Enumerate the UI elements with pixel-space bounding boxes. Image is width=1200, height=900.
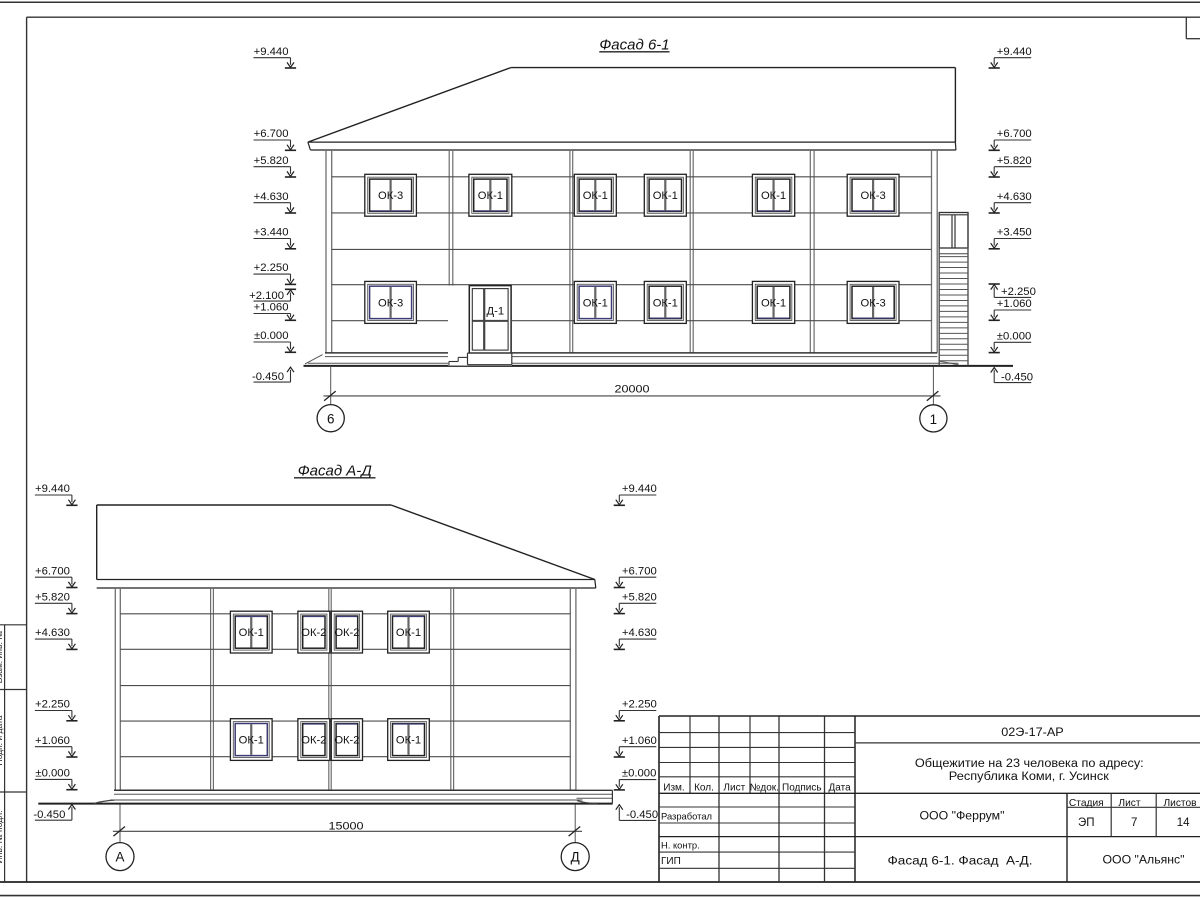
svg-text:ОК-1: ОК-1 — [396, 734, 421, 746]
svg-text:+6.700: +6.700 — [622, 565, 657, 577]
svg-text:ОК-1: ОК-1 — [239, 734, 264, 746]
svg-text:Н. контр.: Н. контр. — [661, 840, 700, 851]
svg-text:ОК-1: ОК-1 — [761, 190, 786, 202]
svg-text:+3.450: +3.450 — [997, 227, 1032, 239]
svg-text:ОК-2: ОК-2 — [334, 627, 359, 639]
svg-text:Листов: Листов — [1163, 798, 1196, 809]
svg-text:02Э-17-АР: 02Э-17-АР — [1001, 727, 1064, 739]
svg-text:ОК-1: ОК-1 — [761, 297, 786, 309]
svg-text:ОК-1: ОК-1 — [653, 190, 678, 202]
svg-text:ОК-1: ОК-1 — [239, 627, 264, 639]
svg-text:+6.700: +6.700 — [997, 128, 1032, 140]
svg-text:Дата: Дата — [829, 782, 852, 793]
svg-text:ОК-3: ОК-3 — [861, 190, 886, 202]
svg-text:ОК-1: ОК-1 — [583, 190, 608, 202]
svg-text:±0.000: ±0.000 — [622, 768, 656, 780]
svg-text:±0.000: ±0.000 — [254, 330, 288, 342]
svg-text:-0.450: -0.450 — [252, 371, 284, 383]
svg-text:+2.250: +2.250 — [254, 262, 289, 274]
svg-text:№док.: №док. — [750, 782, 779, 793]
svg-text:20000: 20000 — [615, 383, 650, 395]
svg-text:Фасад 6-1. Фасад А-Д.: Фасад 6-1. Фасад А-Д. — [888, 855, 1033, 867]
svg-text:+2.250: +2.250 — [35, 699, 70, 711]
svg-text:Подп. и дата: Подп. и дата — [0, 715, 4, 765]
svg-text:ОК-2: ОК-2 — [334, 734, 359, 746]
svg-text:+9.440: +9.440 — [622, 483, 657, 495]
svg-text:15000: 15000 — [329, 821, 364, 833]
svg-text:-0.450: -0.450 — [626, 809, 658, 821]
svg-text:+4.630: +4.630 — [622, 627, 657, 639]
svg-text:Общежитие на 23 человека по ад: Общежитие на 23 человека по адресу: — [915, 758, 1144, 770]
svg-text:+4.630: +4.630 — [35, 627, 70, 639]
svg-text:Фасад А-Д: Фасад А-Д — [298, 462, 373, 479]
svg-text:Республика Коми, г. Усинск: Республика Коми, г. Усинск — [949, 771, 1110, 783]
svg-text:+9.440: +9.440 — [254, 46, 289, 58]
svg-text:+3.440: +3.440 — [254, 227, 289, 239]
svg-text:ОК-1: ОК-1 — [583, 297, 608, 309]
svg-text:+5.820: +5.820 — [35, 591, 70, 603]
svg-text:Взам. инв. №: Взам. инв. № — [0, 631, 4, 684]
svg-text:+2.250: +2.250 — [622, 699, 657, 711]
svg-text:Стадия: Стадия — [1069, 798, 1104, 809]
svg-text:Изм.: Изм. — [663, 782, 684, 793]
svg-text:±0.000: ±0.000 — [35, 768, 69, 780]
svg-text:+5.820: +5.820 — [254, 155, 289, 167]
svg-text:Кол.: Кол. — [694, 782, 714, 793]
svg-text:ОК-2: ОК-2 — [301, 627, 326, 639]
svg-text:+4.630: +4.630 — [254, 191, 289, 203]
svg-text:6: 6 — [327, 412, 334, 427]
svg-text:+9.440: +9.440 — [35, 483, 70, 495]
svg-text:ОК-1: ОК-1 — [653, 297, 678, 309]
svg-text:+1.060: +1.060 — [997, 298, 1032, 310]
svg-text:Подпись: Подпись — [782, 782, 822, 793]
svg-text:ГИП: ГИП — [661, 856, 681, 867]
svg-text:+2.250: +2.250 — [1001, 286, 1036, 298]
svg-text:+9.440: +9.440 — [997, 46, 1032, 58]
svg-text:+6.700: +6.700 — [254, 128, 289, 140]
svg-text:ОК-3: ОК-3 — [378, 297, 403, 309]
svg-text:Инв. № подл.: Инв. № подл. — [0, 811, 4, 864]
svg-text:Д: Д — [571, 850, 580, 865]
svg-text:+5.820: +5.820 — [622, 591, 657, 603]
svg-text:-0.450: -0.450 — [33, 809, 65, 821]
svg-text:+4.630: +4.630 — [997, 191, 1032, 203]
svg-text:А: А — [116, 850, 125, 865]
svg-text:ОК-1: ОК-1 — [478, 190, 503, 202]
svg-text:+2.100: +2.100 — [249, 290, 284, 302]
svg-text:-0.450: -0.450 — [1001, 371, 1033, 383]
svg-text:+1.060: +1.060 — [622, 735, 657, 747]
svg-text:ОК-1: ОК-1 — [396, 627, 421, 639]
svg-text:+1.060: +1.060 — [35, 735, 70, 747]
svg-text:Лист: Лист — [723, 782, 745, 793]
svg-text:ЭП: ЭП — [1078, 817, 1095, 829]
svg-text:ООО "Альянс": ООО "Альянс" — [1103, 855, 1185, 867]
svg-text:ОК-2: ОК-2 — [301, 734, 326, 746]
svg-text:Лист: Лист — [1118, 798, 1140, 809]
svg-text:Фасад 6-1: Фасад 6-1 — [599, 37, 669, 54]
svg-text:14: 14 — [1177, 817, 1190, 829]
svg-text:ОК-3: ОК-3 — [378, 190, 403, 202]
svg-text:ОК-3: ОК-3 — [861, 297, 886, 309]
svg-text:Д-1: Д-1 — [487, 306, 505, 318]
svg-text:+6.700: +6.700 — [35, 565, 70, 577]
svg-text:±0.000: ±0.000 — [997, 330, 1031, 342]
svg-text:ООО "Феррум": ООО "Феррум" — [920, 811, 1005, 823]
svg-text:+5.820: +5.820 — [997, 155, 1032, 167]
svg-text:7: 7 — [1131, 817, 1137, 829]
svg-text:1: 1 — [930, 412, 937, 427]
svg-text:Разработал: Разработал — [661, 810, 712, 821]
svg-text:+1.060: +1.060 — [254, 302, 289, 314]
